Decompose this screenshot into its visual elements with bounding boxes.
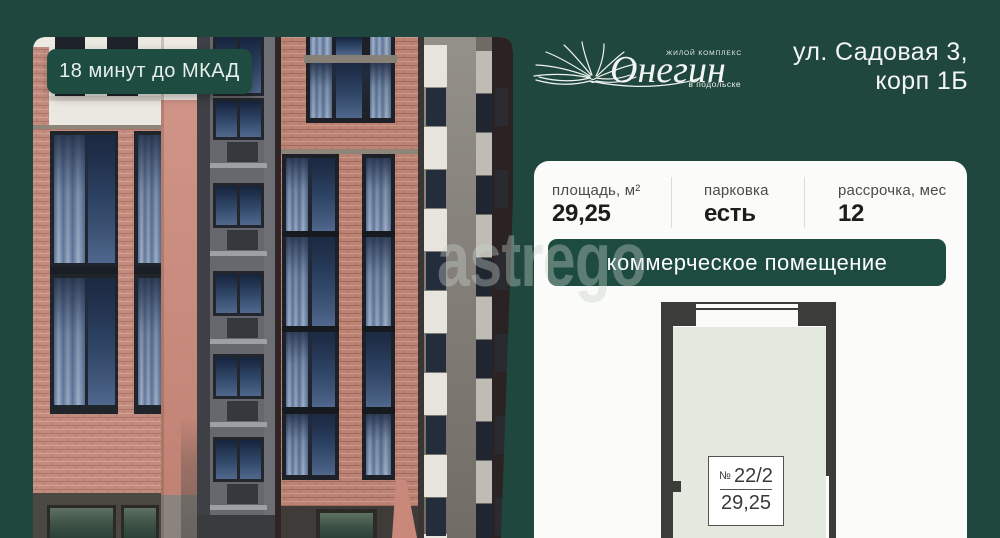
svg-text:ЖИЛОЙ КОМПЛЕКС: ЖИЛОЙ КОМПЛЕКС: [666, 48, 742, 57]
svg-text:в подольске: в подольске: [689, 79, 742, 89]
